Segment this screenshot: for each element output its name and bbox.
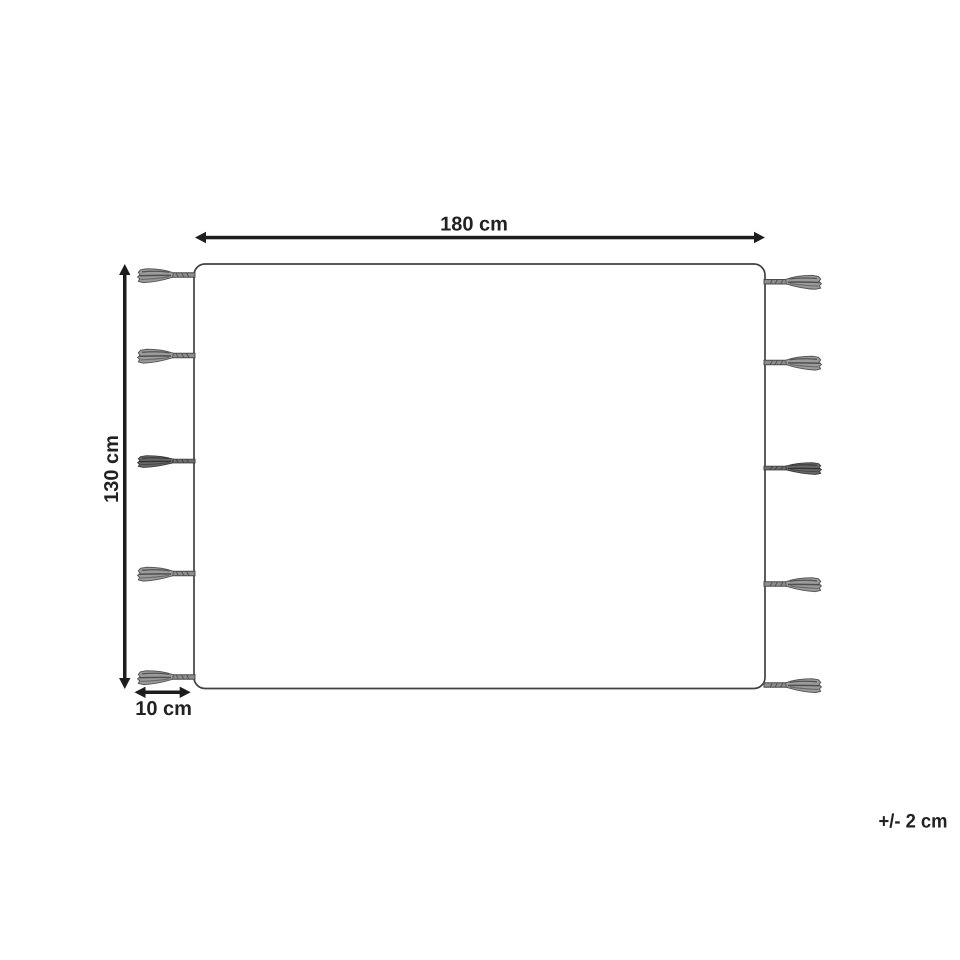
svg-text:+/- 2 cm: +/- 2 cm <box>879 811 948 833</box>
svg-text:10 cm: 10 cm <box>135 698 192 720</box>
svg-text:180 cm: 180 cm <box>440 214 508 236</box>
svg-text:130 cm: 130 cm <box>101 435 123 503</box>
